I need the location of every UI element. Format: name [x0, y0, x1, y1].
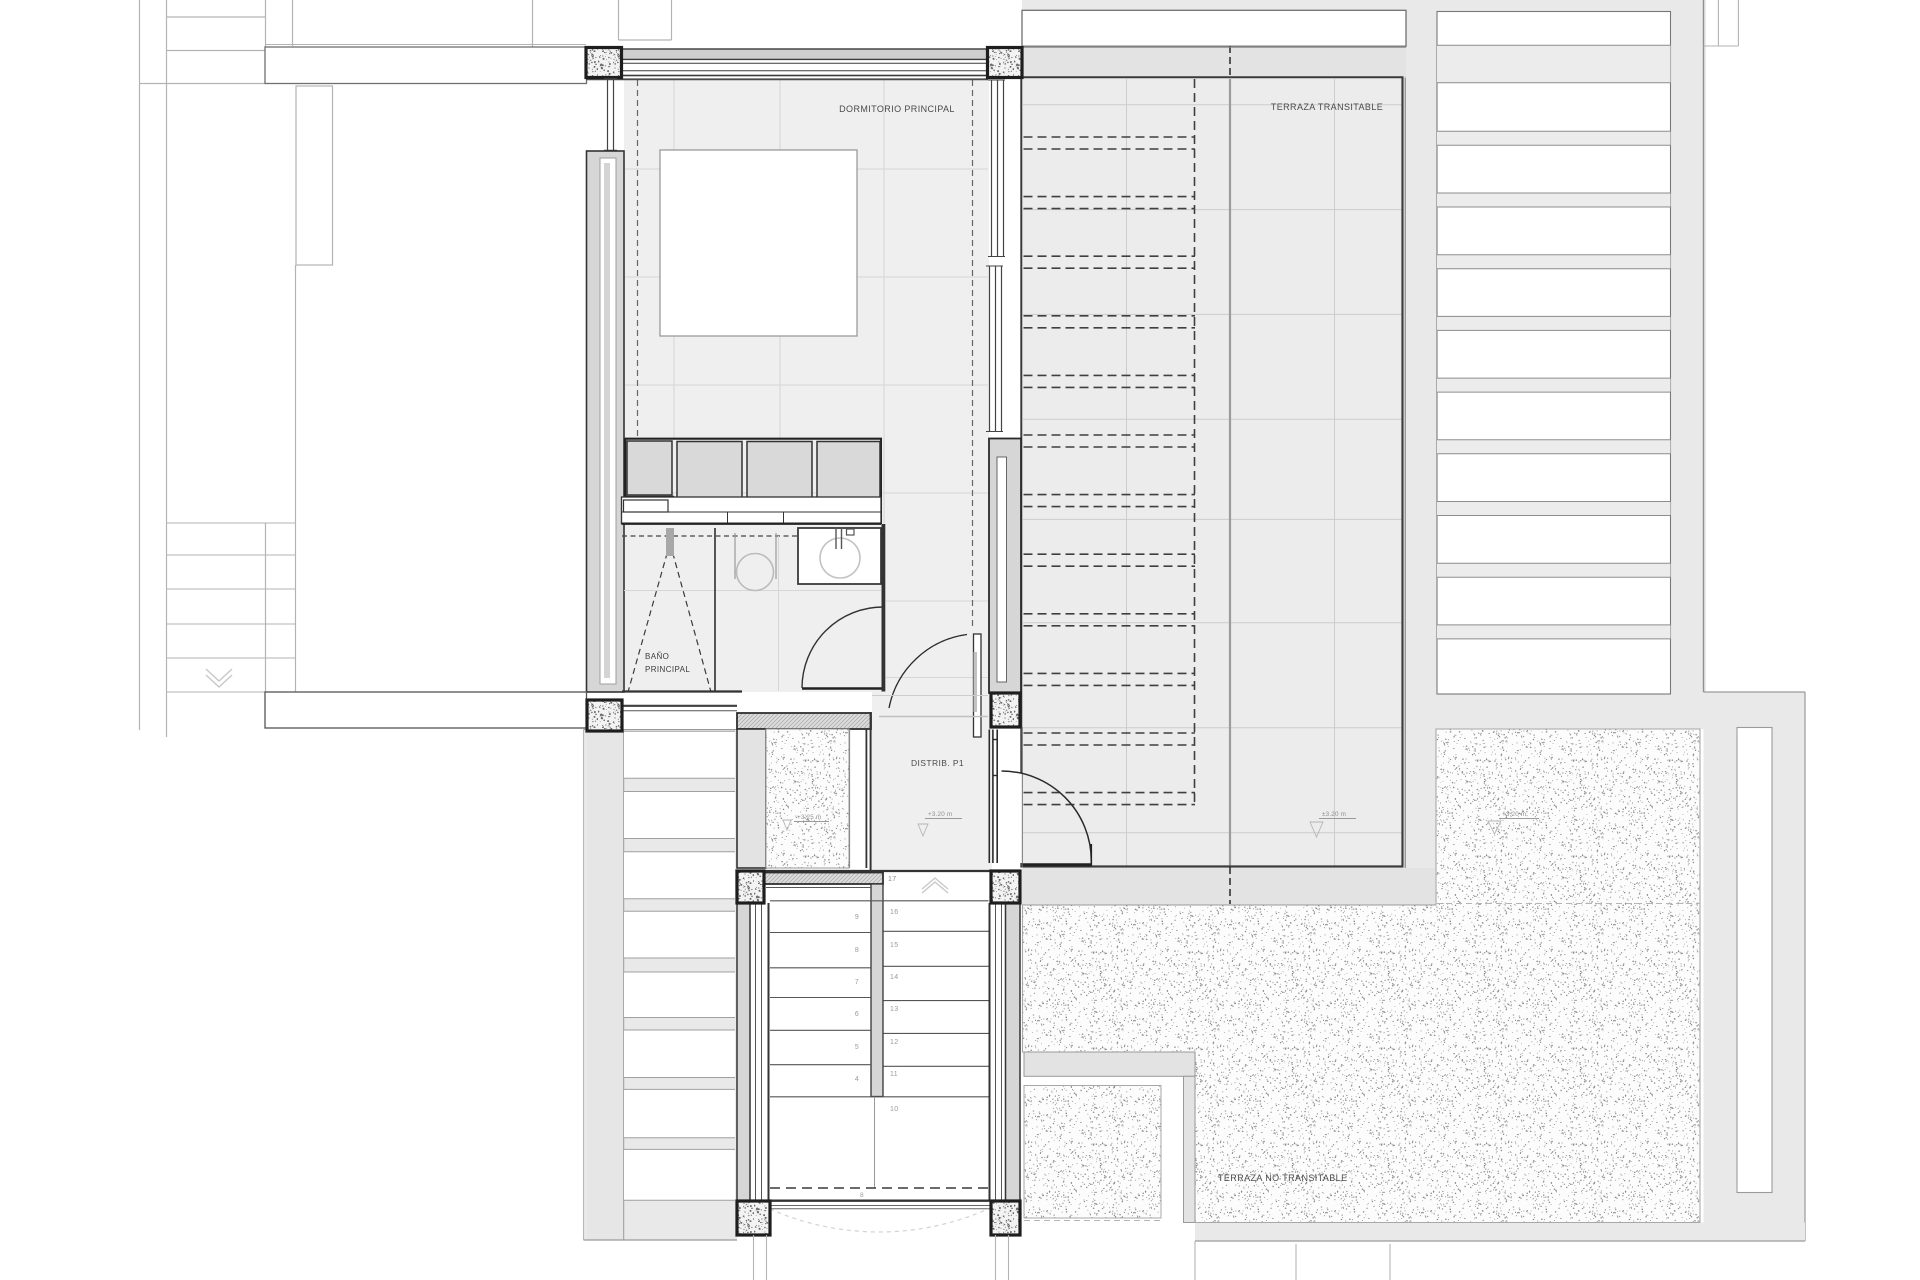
- svg-text:+3.25 m: +3.25 m: [797, 814, 821, 821]
- svg-text:17: 17: [888, 876, 897, 883]
- svg-text:16: 16: [890, 909, 899, 916]
- svg-text:14: 14: [890, 974, 899, 981]
- svg-text:TERRAZA NO TRANSITABLE: TERRAZA NO TRANSITABLE: [1218, 1173, 1348, 1183]
- svg-text:TERRAZA TRANSITABLE: TERRAZA TRANSITABLE: [1271, 102, 1383, 112]
- svg-text:9: 9: [855, 914, 859, 921]
- svg-text:7: 7: [855, 979, 859, 986]
- svg-text:8: 8: [860, 1192, 864, 1199]
- svg-text:DISTRIB. P1: DISTRIB. P1: [911, 758, 964, 768]
- svg-text:+3.20 m: +3.20 m: [1502, 811, 1526, 818]
- svg-text:DORMITORIO PRINCIPAL: DORMITORIO PRINCIPAL: [839, 104, 955, 114]
- svg-text:BAÑO: BAÑO: [645, 652, 669, 661]
- svg-text:8: 8: [855, 947, 859, 954]
- svg-text:10: 10: [890, 1106, 899, 1113]
- svg-text:12: 12: [890, 1039, 899, 1046]
- svg-text:15: 15: [890, 942, 899, 949]
- svg-text:4: 4: [855, 1076, 859, 1083]
- svg-text:±3.20 m: ±3.20 m: [1322, 811, 1346, 818]
- svg-text:PRINCIPAL: PRINCIPAL: [645, 665, 690, 674]
- svg-text:13: 13: [890, 1006, 899, 1013]
- svg-text:+3.20 m: +3.20 m: [928, 811, 952, 818]
- svg-text:6: 6: [855, 1011, 859, 1018]
- svg-text:5: 5: [855, 1044, 859, 1051]
- svg-text:11: 11: [890, 1071, 898, 1078]
